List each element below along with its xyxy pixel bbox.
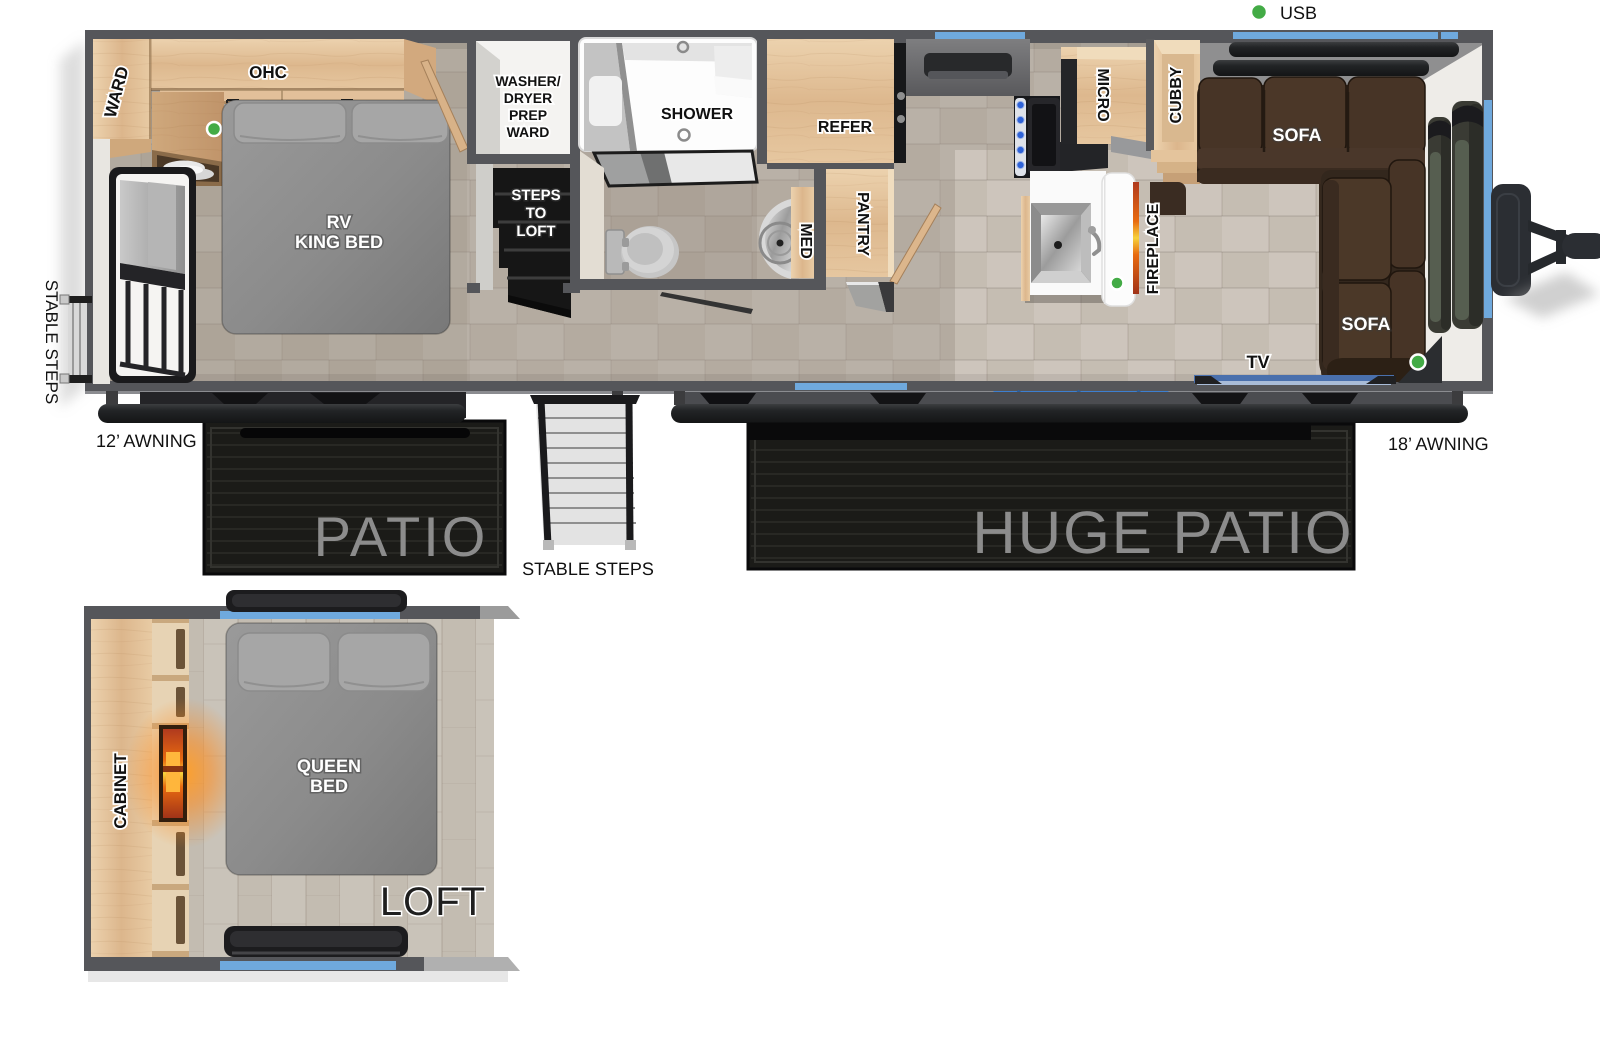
svg-text:MED: MED — [797, 223, 814, 259]
svg-text:OHC: OHC — [249, 63, 287, 82]
svg-text:DRYER: DRYER — [504, 90, 553, 106]
svg-text:BED: BED — [310, 776, 348, 796]
svg-text:RV: RV — [327, 212, 352, 232]
svg-text:PANTRY: PANTRY — [854, 192, 871, 256]
svg-text:FIREPLACE: FIREPLACE — [1145, 203, 1162, 294]
svg-text:STABLE STEPS: STABLE STEPS — [42, 280, 61, 404]
svg-text:PATIO: PATIO — [314, 505, 489, 568]
svg-text:SOFA: SOFA — [1272, 125, 1321, 145]
svg-text:18’ AWNING: 18’ AWNING — [1388, 434, 1489, 454]
svg-text:HUGE PATIO: HUGE PATIO — [972, 499, 1353, 566]
svg-text:TO: TO — [526, 205, 547, 222]
svg-text:WASHER/: WASHER/ — [495, 73, 560, 89]
svg-text:SHOWER: SHOWER — [661, 106, 733, 123]
svg-text:SOFA: SOFA — [1341, 314, 1390, 334]
svg-text:QUEEN: QUEEN — [297, 756, 361, 776]
svg-text:STEPS: STEPS — [511, 187, 560, 204]
svg-text:LOFT: LOFT — [380, 880, 486, 924]
svg-text:WARD: WARD — [507, 124, 550, 140]
svg-text:USB: USB — [1280, 3, 1317, 23]
svg-text:STABLE STEPS: STABLE STEPS — [522, 559, 654, 579]
svg-text:MICRO: MICRO — [1094, 68, 1111, 121]
svg-text:CUBBY: CUBBY — [1168, 66, 1185, 123]
svg-text:TV: TV — [1246, 352, 1269, 372]
svg-text:LOFT: LOFT — [516, 223, 555, 240]
svg-text:KING BED: KING BED — [295, 232, 383, 252]
svg-text:REFER: REFER — [818, 119, 873, 136]
svg-text:PREP: PREP — [509, 107, 547, 123]
svg-text:12’ AWNING: 12’ AWNING — [96, 431, 197, 451]
